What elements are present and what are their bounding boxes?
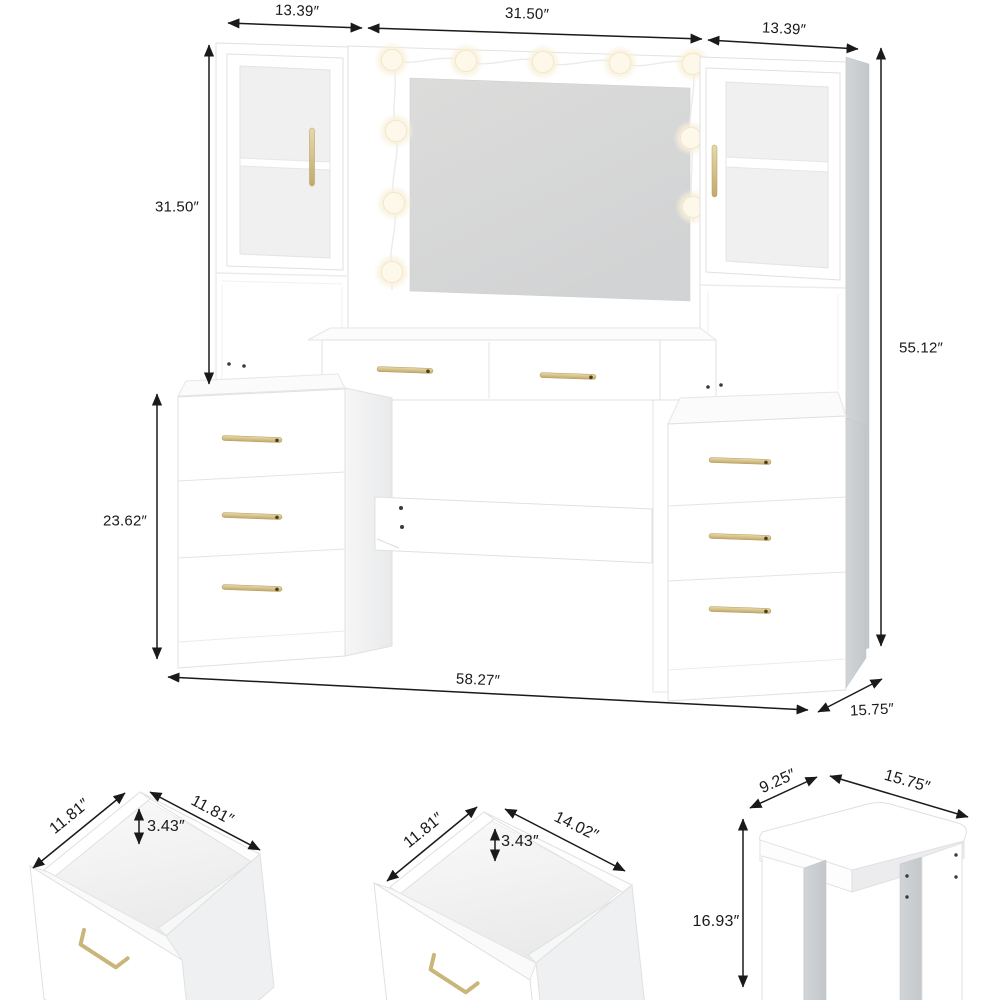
- screw-dot: [400, 525, 404, 529]
- door-handle: [310, 128, 315, 186]
- dim-label-hutch-left-width: 13.39″: [275, 3, 320, 20]
- product-dimension-diagram: 13.39″ 31.50″ 13.39″ 31.50″ 55.12″ 23.62…: [0, 0, 1000, 1000]
- stool-illustration: [760, 803, 967, 1000]
- dim-label-overall-depth: 15.75″: [850, 701, 895, 718]
- dim-label-large-drawer-height: 3.43″: [501, 834, 539, 850]
- dim-label-pedestal-height: 23.62″: [103, 514, 147, 529]
- bulb-icon: [610, 53, 631, 74]
- mirror-glass: [410, 78, 690, 301]
- bulb-icon: [384, 193, 405, 214]
- dim-label-stool-height: 16.93″: [693, 914, 740, 930]
- screw-dot: [954, 853, 957, 856]
- dim-arrow-hutch-right-width: [708, 40, 858, 49]
- stool-right-leg: [922, 843, 962, 1000]
- screw-dot: [719, 383, 723, 387]
- dim-label-overall-width: 58.27″: [456, 672, 501, 689]
- screw-dot: [242, 364, 246, 368]
- right-pedestal: [668, 383, 866, 701]
- vanity-illustration: [178, 42, 869, 701]
- dim-label-hutch-right-width: 13.39″: [762, 20, 807, 37]
- dim-label-small-drawer-height: 3.43″: [147, 819, 185, 835]
- bulb-icon: [386, 121, 407, 142]
- bulb-icon: [533, 52, 554, 73]
- stool-left-leg: [762, 856, 804, 1000]
- screw-dot: [706, 385, 710, 389]
- dim-arrow-hutch-left-width: [228, 23, 362, 28]
- screw-dot: [399, 506, 403, 510]
- diagram-artwork: [0, 0, 1000, 1000]
- bulb-icon: [456, 51, 477, 72]
- screw-dot: [227, 362, 231, 366]
- crossbar-shelf: [375, 497, 652, 563]
- desktop-drawers: [308, 328, 716, 400]
- screw-dot: [905, 874, 908, 877]
- bulb-icon: [681, 128, 702, 149]
- dim-label-hutch-height: 31.50″: [155, 200, 199, 215]
- door-handle: [712, 145, 717, 197]
- dim-label-mirror-width: 31.50″: [505, 6, 550, 23]
- screw-dot: [954, 875, 957, 878]
- right-hutch-cabinet: [700, 57, 846, 418]
- left-pedestal: [178, 374, 392, 668]
- bulb-icon: [382, 50, 403, 71]
- screw-dot: [905, 895, 908, 898]
- dim-label-overall-height: 55.12″: [899, 341, 943, 356]
- dim-arrow-mirror-width: [368, 28, 702, 39]
- bulb-icon: [382, 262, 403, 283]
